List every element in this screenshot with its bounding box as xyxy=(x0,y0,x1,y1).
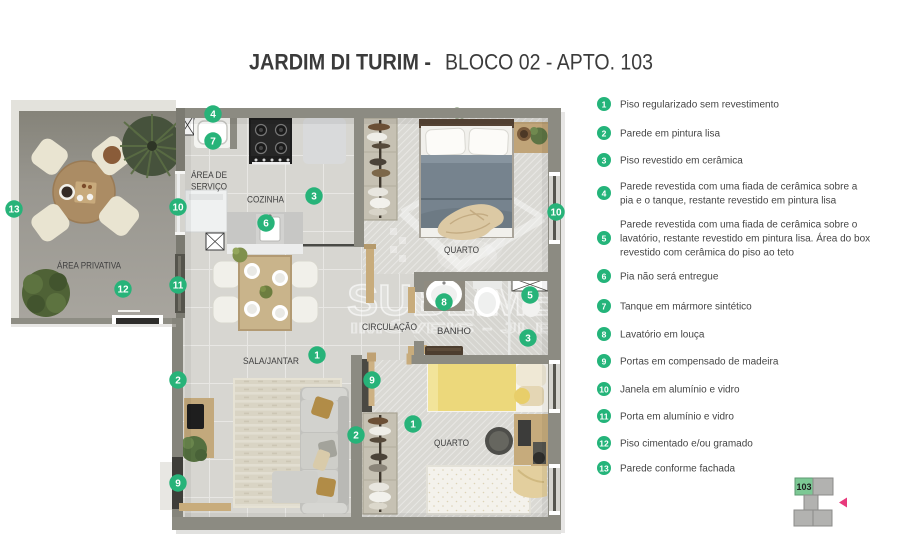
svg-text:4: 4 xyxy=(210,110,216,121)
svg-text:5: 5 xyxy=(602,233,607,243)
svg-text:1: 1 xyxy=(602,99,607,109)
svg-text:5: 5 xyxy=(527,291,533,302)
svg-text:ÁREA DE: ÁREA DE xyxy=(191,170,227,180)
svg-text:QUARTO: QUARTO xyxy=(444,245,479,255)
svg-text:Lavatório em louça: Lavatório em louça xyxy=(620,330,705,341)
svg-text:pia e o tanque, restante reves: pia e o tanque, restante revestido em pi… xyxy=(620,196,837,207)
svg-text:QUARTO: QUARTO xyxy=(434,438,469,448)
svg-text:3: 3 xyxy=(602,155,607,165)
svg-text:Piso revestido em cerâmica: Piso revestido em cerâmica xyxy=(620,156,743,167)
svg-text:Janela em alumínio e vidro: Janela em alumínio e vidro xyxy=(620,385,740,396)
svg-text:SERVIÇO: SERVIÇO xyxy=(191,182,227,192)
svg-text:Parede revestida com uma fiada: Parede revestida com uma fiada de cerâmi… xyxy=(620,220,858,231)
svg-text:13: 13 xyxy=(599,463,609,473)
svg-text:COZINHA: COZINHA xyxy=(247,195,284,205)
svg-text:Piso regularizado sem revestim: Piso regularizado sem revestimento xyxy=(620,100,779,111)
svg-text:lavatório, restante revestido: lavatório, restante revestido em pintura… xyxy=(620,232,870,245)
svg-text:1: 1 xyxy=(314,351,320,362)
svg-text:6: 6 xyxy=(263,219,269,230)
svg-text:12: 12 xyxy=(117,285,129,296)
svg-text:JARDIM DI TURIM -BLOCO 02 - AP: JARDIM DI TURIM -BLOCO 02 - APTO. 103 xyxy=(249,50,653,75)
svg-text:Portas em compensado de madeir: Portas em compensado de madeira xyxy=(620,357,779,368)
svg-text:8: 8 xyxy=(441,298,447,309)
svg-text:13: 13 xyxy=(8,205,20,216)
svg-text:8: 8 xyxy=(602,329,607,339)
svg-text:12: 12 xyxy=(599,438,609,448)
svg-text:7: 7 xyxy=(602,301,607,311)
svg-text:ÁREA PRIVATIVA: ÁREA PRIVATIVA xyxy=(57,261,121,271)
svg-text:BANHO: BANHO xyxy=(437,326,471,336)
svg-text:3: 3 xyxy=(525,334,531,345)
svg-text:SALA/JANTAR: SALA/JANTAR xyxy=(243,356,299,366)
svg-text:CIRCULAÇÃO: CIRCULAÇÃO xyxy=(362,322,417,332)
svg-text:9: 9 xyxy=(175,479,181,490)
svg-text:Pia não será entregue: Pia não será entregue xyxy=(620,272,719,283)
svg-text:3: 3 xyxy=(311,192,317,203)
svg-text:revestido com cerâmica do piso: revestido com cerâmica do piso ao teto xyxy=(620,248,794,259)
svg-text:Parede conforme fachada: Parede conforme fachada xyxy=(620,464,736,475)
svg-text:2: 2 xyxy=(175,376,181,387)
svg-text:4: 4 xyxy=(602,188,607,198)
svg-text:Piso cimentado e/ou gramado: Piso cimentado e/ou gramado xyxy=(620,439,753,450)
svg-text:1: 1 xyxy=(410,420,416,431)
svg-text:10: 10 xyxy=(599,384,609,394)
svg-text:6: 6 xyxy=(602,271,607,281)
svg-text:11: 11 xyxy=(600,411,609,421)
svg-text:2: 2 xyxy=(602,128,607,138)
svg-text:Tanque em mármore sintético: Tanque em mármore sintético xyxy=(620,302,752,313)
svg-text:10: 10 xyxy=(172,203,184,214)
svg-text:7: 7 xyxy=(210,137,216,148)
svg-text:Parede em pintura lisa: Parede em pintura lisa xyxy=(620,129,720,140)
svg-text:Parede revestida com uma fiada: Parede revestida com uma fiada de cerâmi… xyxy=(620,182,858,193)
svg-text:2: 2 xyxy=(353,431,359,442)
svg-text:103: 103 xyxy=(796,482,811,492)
svg-text:9: 9 xyxy=(602,356,607,366)
svg-text:11: 11 xyxy=(173,281,184,292)
svg-text:10: 10 xyxy=(550,208,562,219)
svg-text:Porta em alumínio e vidro: Porta em alumínio e vidro xyxy=(620,412,734,423)
svg-text:9: 9 xyxy=(369,376,375,387)
